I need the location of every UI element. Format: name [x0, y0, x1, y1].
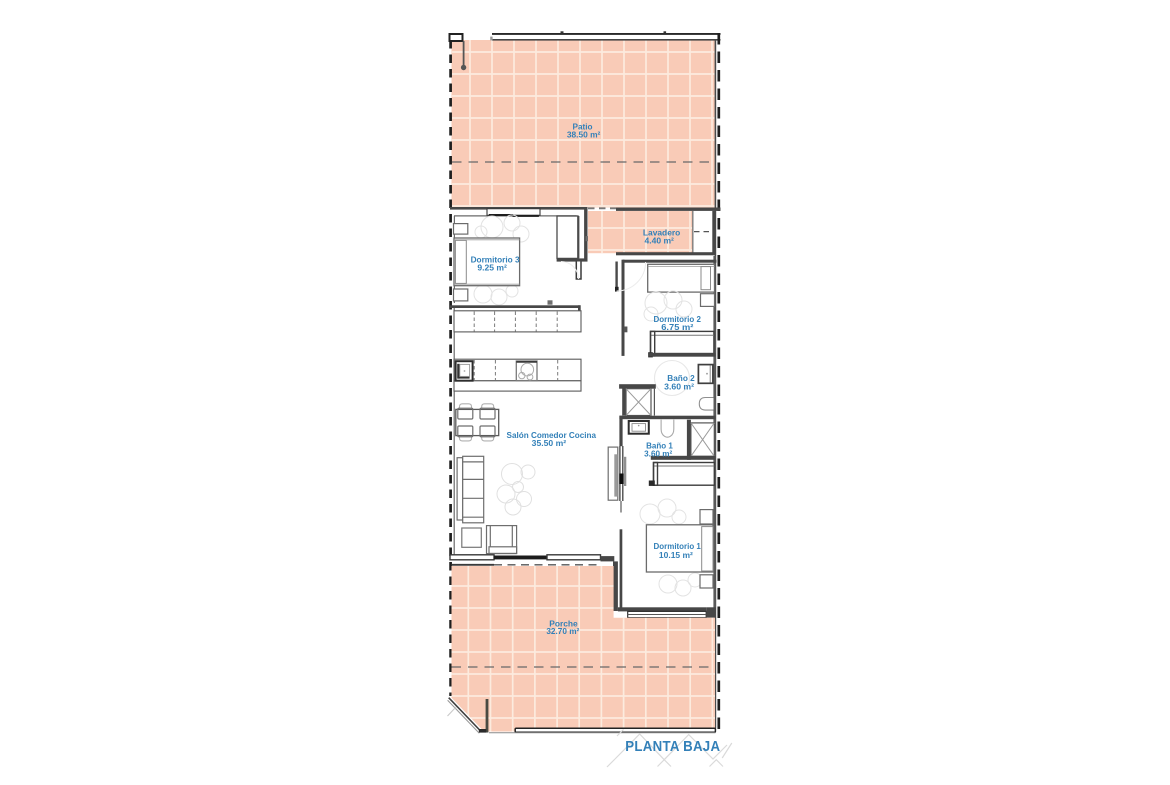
svg-text:3.60 m²: 3.60 m²	[664, 383, 694, 392]
svg-text:Dormitorio 1: Dormitorio 1	[654, 542, 702, 551]
svg-text:3.60 m²: 3.60 m²	[644, 450, 672, 459]
svg-text:PLANTA BAJA: PLANTA BAJA	[625, 739, 720, 755]
svg-text:4.40 m²: 4.40 m²	[645, 237, 675, 246]
svg-text:9.25 m²: 9.25 m²	[477, 264, 507, 273]
svg-text:35.50 m²: 35.50 m²	[532, 439, 567, 448]
svg-text:38.50 m²: 38.50 m²	[567, 131, 601, 140]
svg-text:10.15 m²: 10.15 m²	[659, 551, 693, 560]
svg-text:32.70 m²: 32.70 m²	[546, 627, 579, 636]
svg-text:6.75 m²: 6.75 m²	[661, 323, 694, 332]
